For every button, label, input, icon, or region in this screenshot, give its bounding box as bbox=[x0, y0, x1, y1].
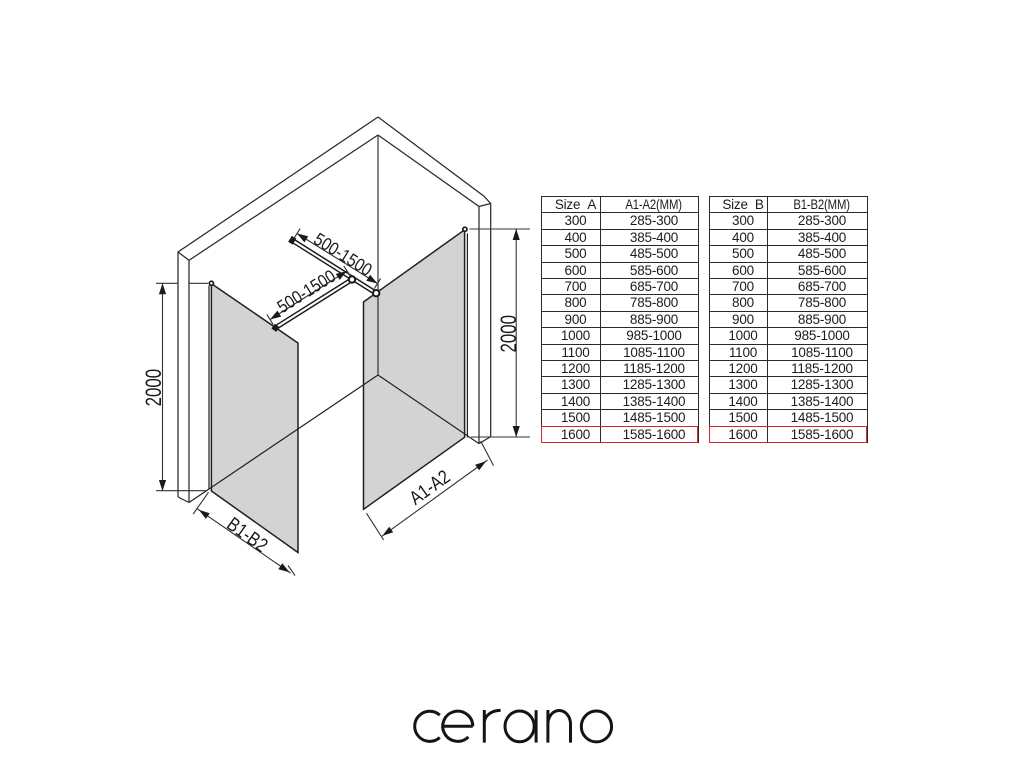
svg-text:2000: 2000 bbox=[497, 315, 522, 353]
svg-text:2000: 2000 bbox=[142, 369, 167, 407]
